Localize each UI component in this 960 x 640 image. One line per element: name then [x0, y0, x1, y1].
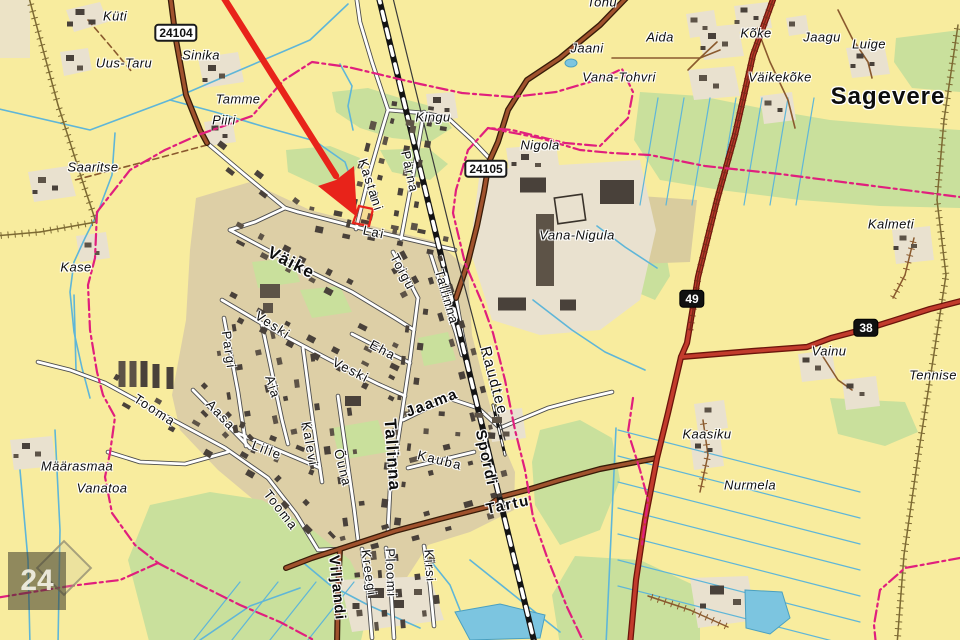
label-sinika: Sinika [182, 48, 220, 63]
map-graphics [0, 0, 960, 640]
sheet-number-badge: 24 [8, 552, 66, 610]
label-kuti: Küti [103, 9, 127, 24]
label-uus-taru: Uus-Taru [96, 56, 152, 71]
road-badge-38: 38 [853, 319, 878, 337]
label-saaritse: Saaritse [68, 160, 119, 175]
label-nurmela: Nurmela [724, 478, 776, 493]
road-badge-24105: 24105 [464, 160, 507, 178]
road-badge-24104: 24104 [154, 24, 197, 42]
label-aida: Aida [646, 30, 674, 45]
label-vana-nigula: Vana-Nigula [539, 228, 614, 243]
label-maarasmaa: Määrasmaa [41, 459, 113, 474]
map-canvas[interactable]: KütiUus-TaruSinikaTammePiiriSaaritseKase… [0, 0, 960, 640]
label-kaasiku: Kaasiku [682, 427, 731, 442]
road-badge-49: 49 [679, 290, 704, 308]
label-tohu: Tohu [587, 0, 617, 10]
label-vaikekoke: Väikekõke [748, 70, 812, 85]
label-sagevere: Sagevere [831, 83, 946, 111]
label-tennise: Tennise [909, 368, 957, 383]
label-nigola: Nigola [520, 138, 559, 153]
label-kingu: Kingu [415, 110, 450, 125]
label-vanatoa: Vanatoa [77, 481, 128, 496]
label-vana-tohvri: Vana-Tohvri [582, 70, 656, 85]
label-kase: Kase [60, 260, 91, 275]
label-ploomi-street: Ploomi [383, 548, 400, 598]
label-luige: Luige [852, 37, 886, 52]
label-kalmeti: Kalmeti [868, 217, 914, 232]
label-piiri: Piiri [212, 113, 236, 128]
label-vainu: Vainu [812, 344, 847, 359]
label-jaagu: Jaagu [803, 30, 840, 45]
label-kirsi-street: Kirsi [421, 549, 438, 583]
label-koke: Kõke [740, 26, 771, 41]
label-jaani: Jaani [570, 41, 603, 56]
label-tamme: Tamme [216, 92, 261, 107]
